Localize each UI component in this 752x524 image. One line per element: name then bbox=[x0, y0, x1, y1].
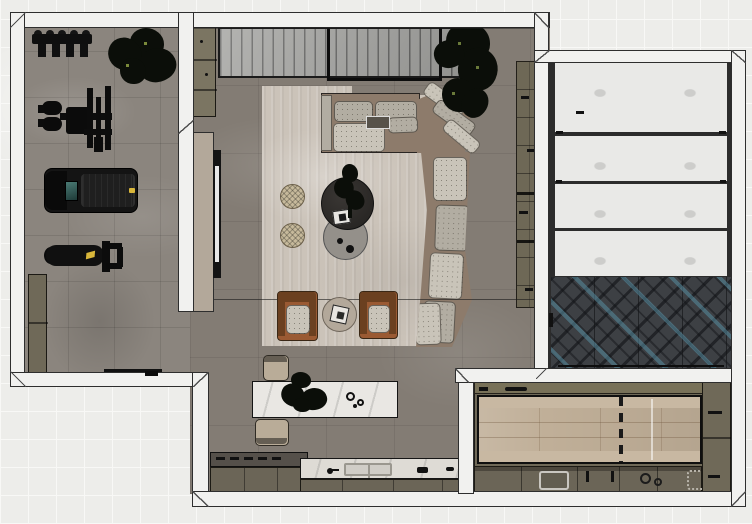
corner-miter bbox=[536, 368, 547, 379]
sofa-chaise-cushion bbox=[434, 204, 470, 251]
counter-lip bbox=[475, 467, 703, 471]
cabinet-handle bbox=[479, 387, 488, 391]
corner-miter bbox=[193, 372, 209, 387]
weight-stack bbox=[42, 101, 62, 115]
cabinet-dot bbox=[205, 73, 208, 76]
corner-miter bbox=[731, 491, 746, 507]
wall-mid-right bbox=[455, 368, 732, 383]
wall-east-main bbox=[534, 12, 549, 378]
bar-stool bbox=[255, 419, 289, 446]
counter-knob bbox=[244, 457, 253, 460]
treadmill-console bbox=[45, 171, 67, 210]
pouf bbox=[280, 184, 305, 209]
island-dot-decor bbox=[353, 404, 357, 408]
rack-bar bbox=[32, 34, 92, 44]
dumbbell-rack bbox=[32, 30, 92, 57]
hob-burner bbox=[640, 473, 651, 484]
dining-sink bbox=[539, 471, 569, 490]
herringbone-rug bbox=[551, 277, 731, 372]
cabinet-divider bbox=[703, 437, 732, 439]
floor-plan-canvas bbox=[0, 0, 752, 524]
armchair-arm bbox=[278, 300, 285, 336]
machine-foot bbox=[94, 137, 103, 152]
panel-hinge bbox=[719, 131, 726, 134]
counter-knob bbox=[272, 457, 281, 460]
side-table-decor bbox=[346, 245, 354, 253]
corner-miter bbox=[534, 50, 550, 63]
panel-handle bbox=[576, 111, 584, 114]
counter-item bbox=[446, 467, 454, 471]
machine-cross bbox=[84, 129, 112, 135]
panel-hinge bbox=[720, 180, 726, 183]
armchair-arm bbox=[309, 300, 316, 336]
coffee-table-plant bbox=[332, 164, 368, 218]
table-light-seam bbox=[651, 399, 653, 460]
weight-knob bbox=[38, 119, 44, 127]
table-center-seam bbox=[619, 397, 623, 462]
foliage-speck bbox=[476, 66, 479, 69]
armchair-seat-cushion bbox=[368, 305, 390, 333]
cabinet-divider bbox=[193, 59, 217, 61]
foliage-speck bbox=[144, 42, 147, 45]
machine-bar bbox=[105, 86, 111, 150]
stem bbox=[348, 206, 352, 218]
weight-bench bbox=[44, 241, 123, 272]
rack-leg bbox=[80, 44, 88, 57]
side-table-decor bbox=[337, 238, 343, 244]
dining-table-group bbox=[477, 395, 702, 464]
garage-panel-3 bbox=[553, 184, 729, 228]
living-room-plant bbox=[428, 22, 504, 122]
corner-miter bbox=[178, 120, 194, 134]
counter-item bbox=[417, 467, 428, 473]
media-wall-panel bbox=[193, 132, 214, 312]
weight-stack bbox=[42, 117, 62, 131]
garage-panel-2 bbox=[553, 136, 729, 181]
rack-leg bbox=[38, 44, 46, 57]
faucet-arm bbox=[332, 469, 339, 471]
wall-top bbox=[10, 12, 550, 28]
corner-miter bbox=[455, 368, 469, 383]
machine-bar bbox=[87, 88, 93, 148]
foliage bbox=[120, 58, 146, 84]
island-ring-decor bbox=[357, 399, 364, 406]
wall-shadow-line bbox=[194, 27, 534, 29]
foliage-speck bbox=[458, 42, 461, 45]
rack-leg bbox=[52, 44, 60, 57]
tray-decor bbox=[336, 311, 344, 319]
counter-knob bbox=[258, 457, 267, 460]
weight-knob bbox=[38, 105, 44, 113]
cabinet-divider bbox=[193, 89, 217, 91]
foliage-speck bbox=[126, 64, 129, 67]
wall-left bbox=[10, 12, 25, 387]
counter-sink bbox=[344, 463, 392, 476]
cabinet-handle bbox=[505, 387, 527, 391]
gym-wall-cabinet bbox=[192, 27, 216, 117]
armchair-side-table bbox=[322, 297, 357, 332]
dining-tall-cabinet-column bbox=[702, 382, 731, 492]
drawer-handle bbox=[611, 471, 614, 482]
tv-frame-unit bbox=[327, 20, 442, 81]
herringbone-edge-line bbox=[558, 365, 724, 367]
wall-stub-vertical bbox=[458, 382, 474, 494]
cabinet-divider bbox=[29, 322, 48, 324]
island-plant bbox=[279, 372, 331, 416]
counter-seam bbox=[577, 467, 578, 493]
shelf-item bbox=[525, 288, 533, 291]
panel-hinge bbox=[556, 180, 562, 183]
gym-plant bbox=[104, 26, 180, 88]
counter-knob bbox=[216, 457, 225, 460]
foliage-speck bbox=[452, 92, 455, 95]
garage-panel-4 bbox=[553, 231, 729, 276]
stool-backrest bbox=[264, 356, 287, 362]
dining-counter bbox=[474, 466, 702, 492]
sofa-back-cushion bbox=[388, 116, 419, 133]
wall-tv bbox=[213, 150, 221, 278]
wall-right-top bbox=[534, 50, 745, 63]
corner-miter bbox=[192, 491, 209, 507]
corner-miter bbox=[534, 12, 549, 28]
panel-hinge bbox=[556, 131, 563, 134]
wall-right-east bbox=[731, 50, 746, 507]
shelf-item bbox=[527, 149, 534, 152]
brand-mark bbox=[129, 188, 135, 193]
bench-pad bbox=[46, 245, 104, 266]
corner-miter bbox=[10, 371, 26, 387]
door-handle bbox=[145, 371, 158, 376]
shelf-item bbox=[519, 211, 528, 214]
wall-gym-south bbox=[10, 372, 196, 387]
wall-partition-gym bbox=[178, 12, 194, 312]
hob-burner bbox=[654, 478, 662, 486]
pouf bbox=[280, 223, 305, 248]
rack-leg bbox=[66, 44, 74, 57]
counter-seam bbox=[619, 467, 620, 493]
island-ring-decor bbox=[346, 392, 355, 401]
corner-miter bbox=[10, 12, 26, 28]
sink-divider bbox=[368, 465, 370, 478]
cabinet-dot bbox=[200, 40, 203, 43]
counter-knob bbox=[230, 457, 239, 460]
wall-west-lower bbox=[192, 372, 209, 496]
foliage bbox=[293, 398, 311, 412]
sofa-armrest bbox=[321, 95, 332, 151]
stool-backrest bbox=[256, 438, 287, 444]
armchair-arm bbox=[360, 300, 367, 334]
corner-miter bbox=[731, 50, 746, 63]
armchair bbox=[359, 291, 398, 339]
treadmill-deck bbox=[81, 174, 135, 207]
drawer-handle bbox=[586, 471, 589, 482]
dining-table-top bbox=[479, 408, 700, 451]
tv-screen bbox=[215, 166, 219, 262]
sofa-chaise-cushion bbox=[428, 252, 464, 300]
cable-machine bbox=[40, 85, 115, 153]
door-pivot-mark bbox=[549, 313, 553, 327]
counter-seam bbox=[521, 467, 522, 493]
kitchen-counter-marble-top bbox=[300, 458, 460, 479]
cabinet-handle bbox=[708, 475, 720, 478]
treadmill bbox=[44, 168, 138, 213]
armchair-arm bbox=[389, 300, 396, 334]
gym-side-cabinets bbox=[28, 274, 47, 378]
armchair-seat-cushion bbox=[286, 305, 310, 334]
garage-panel-1 bbox=[553, 63, 729, 132]
sofa-chaise-cushion bbox=[433, 157, 467, 201]
shelf-item bbox=[521, 96, 529, 99]
treadmill-screen bbox=[65, 181, 78, 201]
cabinet-handle bbox=[708, 411, 722, 414]
bench-upright bbox=[117, 247, 123, 267]
armchair bbox=[277, 291, 318, 341]
sofa-tray bbox=[366, 116, 390, 129]
